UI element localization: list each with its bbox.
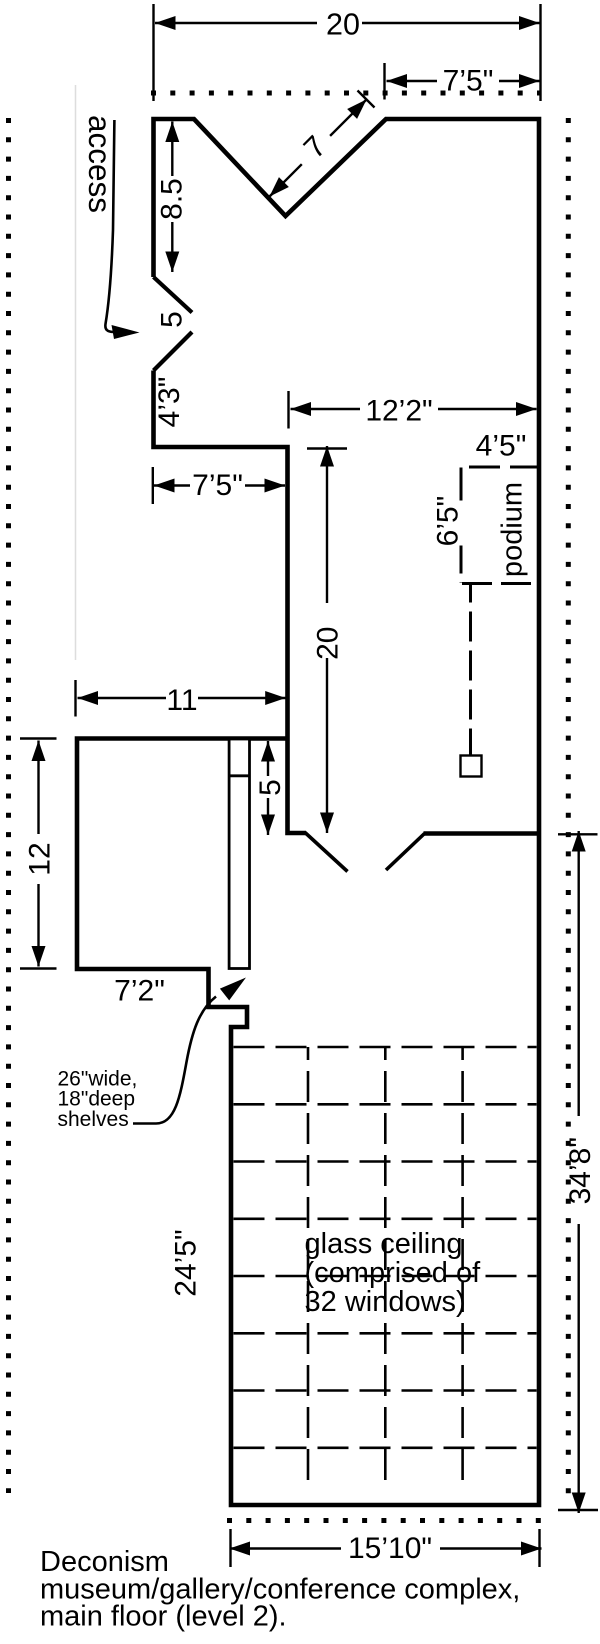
svg-text:(comprised of: (comprised of [305,1257,482,1289]
svg-text:12: 12 [23,842,56,875]
svg-text:34’8": 34’8" [564,1137,597,1204]
svg-text:7: 7 [298,130,333,165]
svg-text:7’2": 7’2" [114,974,165,1007]
svg-text:shelves: shelves [58,1108,129,1131]
svg-text:4’5": 4’5" [476,430,527,463]
svg-text:5: 5 [254,779,287,796]
svg-text:6’5": 6’5" [432,496,465,547]
svg-text:20: 20 [326,8,360,42]
svg-text:7’5": 7’5" [443,65,494,98]
svg-text:11: 11 [166,684,197,717]
svg-text:12’2": 12’2" [365,395,432,428]
svg-text:15’10": 15’10" [348,1532,432,1565]
svg-text:5: 5 [155,311,188,328]
svg-text:8.5: 8.5 [155,178,188,220]
svg-text:podium: podium [497,482,529,577]
svg-text:32 windows): 32 windows) [305,1286,466,1318]
svg-text:24’5": 24’5" [169,1229,202,1296]
svg-text:main floor (level 2).: main floor (level 2). [40,1601,287,1633]
svg-text:glass ceiling: glass ceiling [305,1228,463,1260]
svg-text:20: 20 [311,627,344,660]
svg-text:4’3": 4’3" [153,377,186,428]
svg-text:7’5": 7’5" [192,469,243,502]
